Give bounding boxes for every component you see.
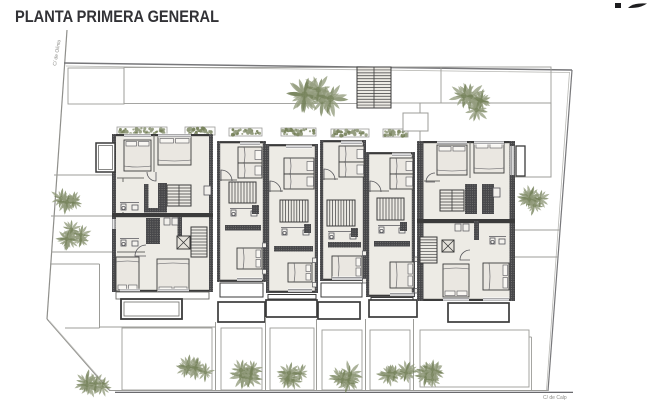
svg-text:PLANTA PRIMERA GENERAL: PLANTA PRIMERA GENERAL bbox=[15, 7, 219, 26]
svg-text:C/ de Calp: C/ de Calp bbox=[543, 395, 567, 401]
